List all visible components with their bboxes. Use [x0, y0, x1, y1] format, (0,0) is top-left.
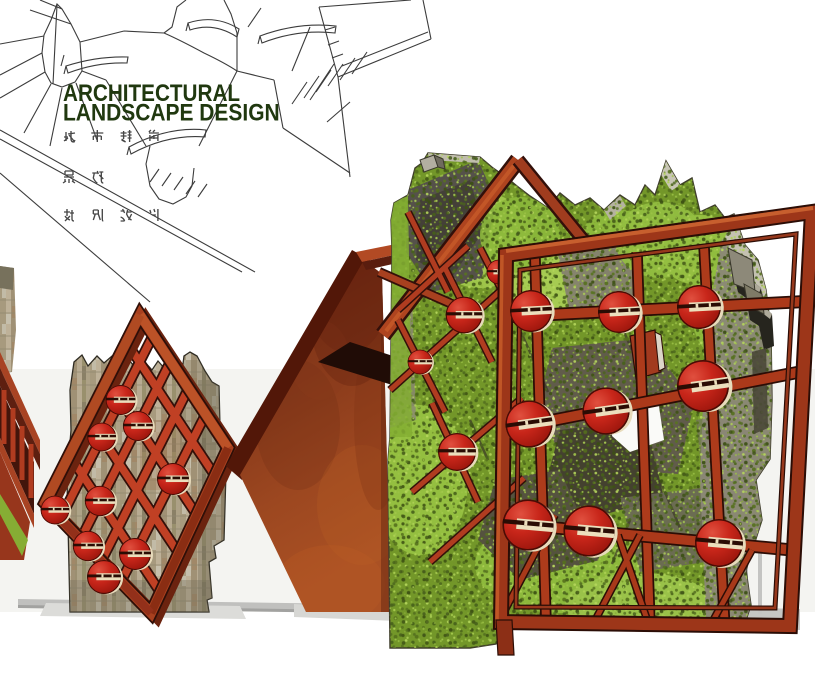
svg-text:LANDSCAPE DESIGN: LANDSCAPE DESIGN	[63, 98, 280, 126]
